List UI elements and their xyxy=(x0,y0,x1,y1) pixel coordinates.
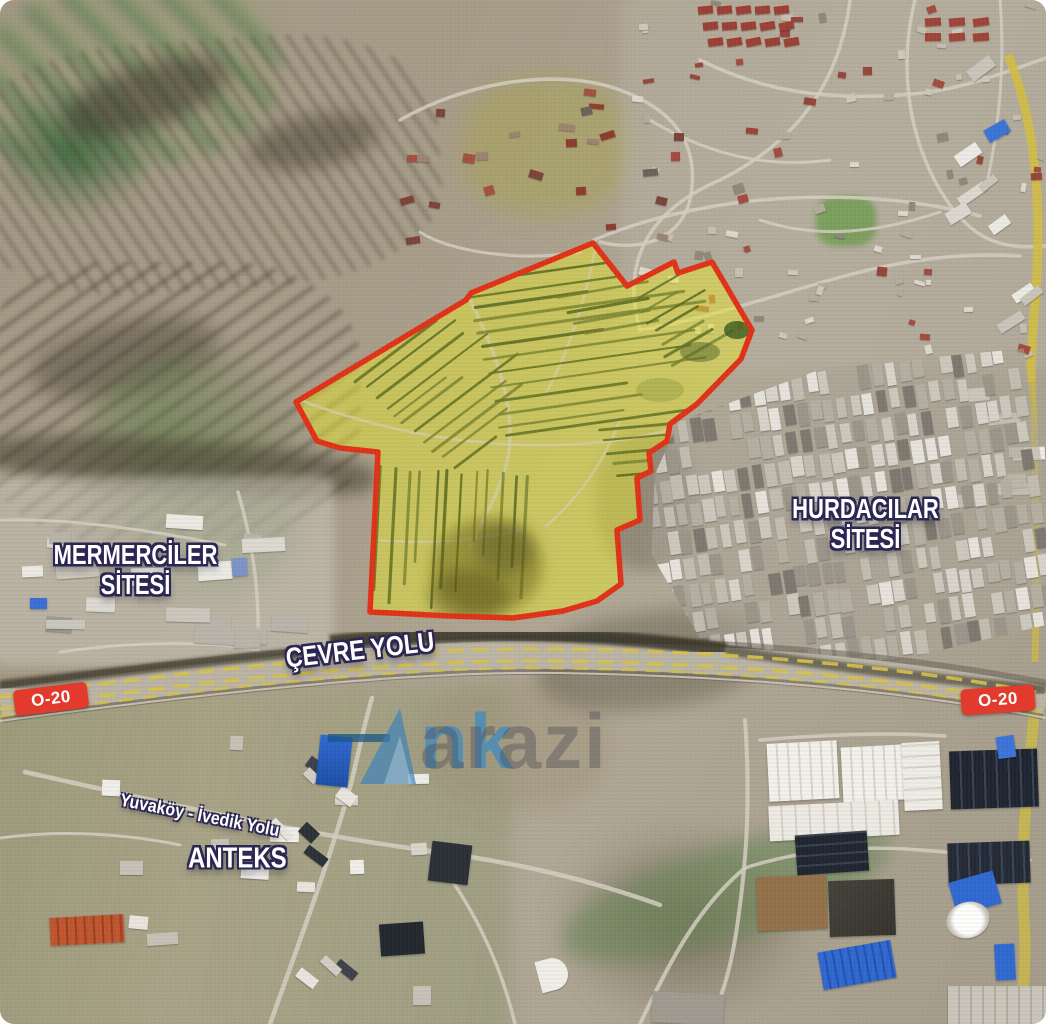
highlighted-parcel-overlay xyxy=(0,0,1046,1024)
satellite-map-view: nkarazi MERMERCİLER SİTESİ HURDACILAR Sİ… xyxy=(0,0,1046,1024)
